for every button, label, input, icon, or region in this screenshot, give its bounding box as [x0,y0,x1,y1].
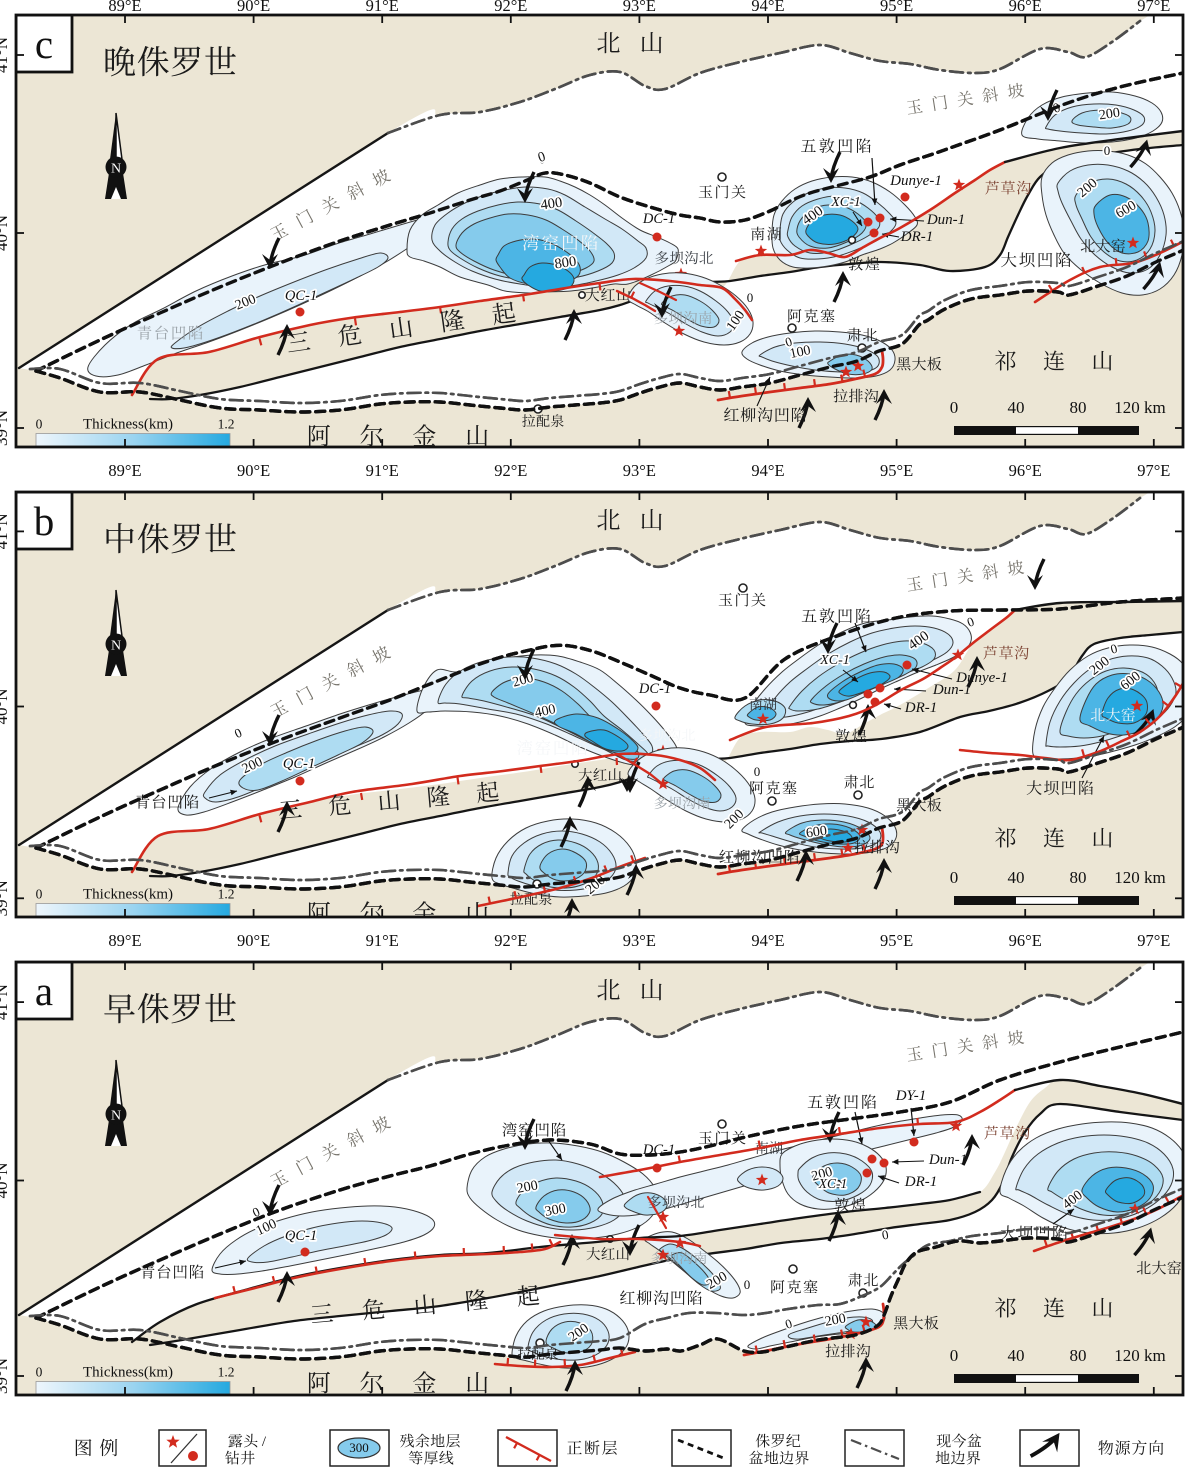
svg-text:89°E: 89°E [108,931,141,950]
svg-text:120 km: 120 km [1114,398,1165,417]
svg-text:QC-1: QC-1 [285,288,317,304]
svg-text:300: 300 [349,1440,369,1455]
svg-text:80: 80 [1070,1346,1087,1365]
svg-text:93°E: 93°E [623,461,656,480]
svg-text:Dun-1: Dun-1 [926,212,965,228]
svg-text:39°N: 39°N [0,1358,11,1394]
svg-text:93°E: 93°E [623,0,656,15]
svg-text:97°E: 97°E [1137,461,1170,480]
svg-text:Thickness(km): Thickness(km) [83,1365,173,1381]
svg-text:800: 800 [554,254,578,273]
svg-text:39°N: 39°N [0,880,11,916]
svg-text:92°E: 92°E [494,931,527,950]
svg-text:Thickness(km): Thickness(km) [83,887,173,903]
svg-text:c: c [35,21,53,67]
svg-text:0: 0 [36,417,43,432]
svg-text:95°E: 95°E [880,0,913,15]
svg-text:91°E: 91°E [366,461,399,480]
svg-text:XC-1: XC-1 [818,1176,848,1191]
svg-text:0: 0 [744,1277,751,1292]
svg-text:91°E: 91°E [366,0,399,15]
svg-text:90°E: 90°E [237,0,270,15]
svg-text:90°E: 90°E [237,461,270,480]
svg-text:89°E: 89°E [108,461,141,480]
svg-text:a: a [35,968,53,1014]
svg-text:1.2: 1.2 [218,417,235,432]
svg-text:DR-1: DR-1 [904,1174,938,1190]
svg-text:94°E: 94°E [751,0,784,15]
svg-text:Dun-1: Dun-1 [928,1152,967,1168]
svg-text:Thickness(km): Thickness(km) [83,417,173,433]
svg-text:40°N: 40°N [0,688,11,724]
svg-text:95°E: 95°E [880,931,913,950]
svg-text:96°E: 96°E [1009,461,1042,480]
svg-text:120 km: 120 km [1114,868,1165,887]
svg-text:QC-1: QC-1 [283,756,315,772]
svg-text:0: 0 [747,290,754,305]
svg-text:N: N [111,162,121,177]
svg-text:0: 0 [754,764,761,779]
svg-text:80: 80 [1070,868,1087,887]
svg-text:Dun-1: Dun-1 [932,682,971,698]
svg-text:40°N: 40°N [0,1162,11,1198]
svg-text:QC-1: QC-1 [285,1228,317,1244]
svg-text:92°E: 92°E [494,0,527,15]
svg-text:40: 40 [1008,398,1025,417]
svg-text:41°N: 41°N [0,37,11,73]
svg-text:Dunye-1: Dunye-1 [889,173,942,189]
svg-text:97°E: 97°E [1137,931,1170,950]
svg-text:96°E: 96°E [1009,0,1042,15]
svg-text:41°N: 41°N [0,984,11,1020]
svg-text:90°E: 90°E [237,931,270,950]
svg-text:92°E: 92°E [494,461,527,480]
svg-text:XC-1: XC-1 [830,195,861,210]
svg-text:N: N [111,639,121,654]
svg-text:120 km: 120 km [1114,1346,1165,1365]
svg-text:96°E: 96°E [1009,931,1042,950]
svg-text:80: 80 [1070,398,1087,417]
svg-text:41°N: 41°N [0,513,11,549]
svg-text:XC-1: XC-1 [819,653,850,668]
svg-text:1.2: 1.2 [218,1365,235,1380]
svg-text:DY-1: DY-1 [895,1088,927,1104]
svg-text:200: 200 [1098,106,1121,124]
svg-text:0: 0 [950,1346,959,1365]
svg-text:39°N: 39°N [0,410,11,446]
svg-text:0: 0 [950,398,959,417]
svg-text:1.2: 1.2 [218,887,235,902]
svg-text:0: 0 [950,868,959,887]
svg-text:93°E: 93°E [623,931,656,950]
svg-text:0: 0 [36,1365,43,1380]
svg-text:94°E: 94°E [751,461,784,480]
svg-text:400: 400 [540,195,564,214]
svg-text:95°E: 95°E [880,461,913,480]
svg-text:40°N: 40°N [0,215,11,251]
svg-text:40: 40 [1008,1346,1025,1365]
svg-text:97°E: 97°E [1137,0,1170,15]
svg-text:0: 0 [36,887,43,902]
svg-text:91°E: 91°E [366,931,399,950]
svg-text:DR-1: DR-1 [900,229,934,245]
svg-text:94°E: 94°E [751,931,784,950]
svg-text:N: N [111,1109,121,1124]
svg-text:40: 40 [1008,868,1025,887]
svg-text:0: 0 [1104,143,1111,158]
svg-text:DR-1: DR-1 [904,700,938,716]
svg-text:89°E: 89°E [108,0,141,15]
svg-text:b: b [34,498,55,544]
